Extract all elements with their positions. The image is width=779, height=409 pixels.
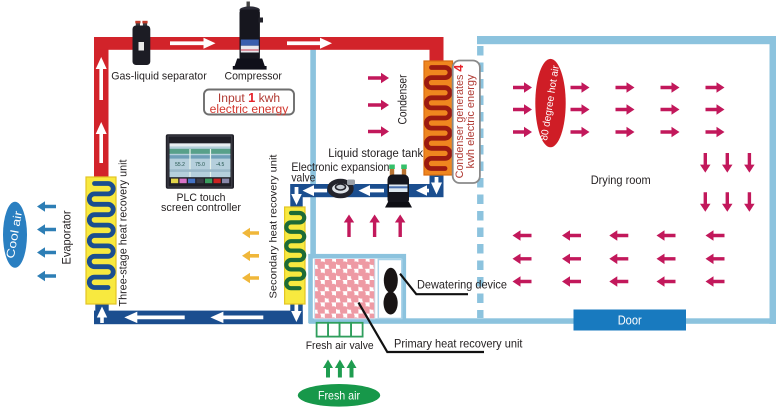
svg-text:Condenser generates 4: Condenser generates 4	[452, 65, 466, 179]
svg-text:Primary heat recovery unit: Primary heat recovery unit	[394, 337, 523, 351]
svg-text:Secondary heat recovery unit: Secondary heat recovery unit	[269, 154, 280, 298]
svg-text:Compressor: Compressor	[224, 71, 282, 83]
svg-text:Drying room: Drying room	[591, 174, 651, 187]
svg-text:kwh electric energy: kwh electric energy	[465, 74, 477, 169]
svg-text:Fresh air: Fresh air	[318, 389, 360, 402]
svg-text:electric energy: electric energy	[210, 102, 290, 116]
svg-text:valve: valve	[291, 172, 315, 185]
svg-text:Door: Door	[618, 314, 642, 328]
svg-text:-4.5: -4.5	[216, 162, 225, 168]
svg-text:Condenser: Condenser	[398, 74, 410, 124]
svg-text:Liquid storage tank: Liquid storage tank	[328, 148, 423, 160]
svg-text:screen controller: screen controller	[161, 202, 241, 214]
svg-text:55.2: 55.2	[175, 162, 185, 168]
svg-text:Fresh air valve: Fresh air valve	[306, 340, 374, 352]
svg-text:Dewatering device: Dewatering device	[417, 278, 507, 291]
svg-text:Three-stage heat recovery unit: Three-stage heat recovery unit	[117, 159, 129, 306]
svg-text:Evaporator: Evaporator	[62, 210, 74, 264]
svg-text:Gas-liquid separator: Gas-liquid separator	[111, 71, 207, 83]
svg-text:75.0: 75.0	[195, 162, 205, 168]
